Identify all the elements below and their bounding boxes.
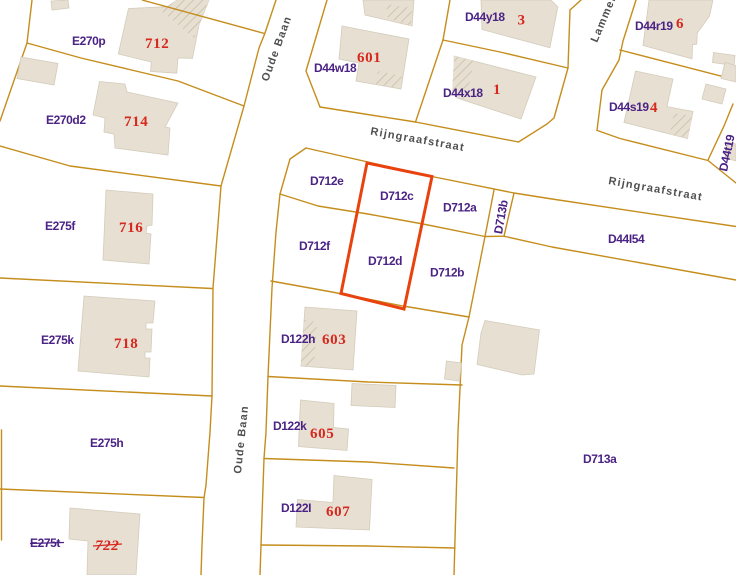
svg-text:D712a: D712a <box>443 201 477 215</box>
svg-text:D712c: D712c <box>380 189 414 203</box>
svg-text:605: 605 <box>310 426 334 442</box>
svg-text:D44r19: D44r19 <box>635 19 673 33</box>
svg-text:D44y18: D44y18 <box>465 10 505 24</box>
svg-text:D44w18: D44w18 <box>314 61 357 75</box>
svg-text:D712e: D712e <box>310 174 344 188</box>
svg-text:D122k: D122k <box>273 419 307 433</box>
svg-text:E275k: E275k <box>41 333 74 347</box>
svg-text:D712d: D712d <box>368 254 402 268</box>
svg-text:722: 722 <box>95 538 119 554</box>
svg-text:6: 6 <box>676 16 684 32</box>
svg-text:714: 714 <box>124 114 148 130</box>
svg-text:4: 4 <box>650 100 658 116</box>
svg-text:607: 607 <box>326 504 350 520</box>
svg-text:712: 712 <box>145 36 169 52</box>
svg-text:1: 1 <box>493 82 501 98</box>
svg-text:D712b: D712b <box>430 266 464 280</box>
svg-text:D44s19: D44s19 <box>609 100 649 114</box>
svg-text:E270p: E270p <box>72 34 105 48</box>
svg-text:D122h: D122h <box>281 332 315 346</box>
svg-text:D44x18: D44x18 <box>443 86 483 100</box>
svg-text:E275f: E275f <box>45 219 76 233</box>
svg-text:E275h: E275h <box>90 436 123 450</box>
svg-text:D712f: D712f <box>299 239 331 253</box>
svg-text:D44I54: D44I54 <box>608 232 645 246</box>
svg-text:601: 601 <box>357 50 381 66</box>
svg-text:D122I: D122I <box>281 501 311 515</box>
svg-text:718: 718 <box>114 336 138 352</box>
svg-text:E270d2: E270d2 <box>46 113 86 127</box>
svg-text:D713a: D713a <box>583 452 617 466</box>
svg-text:716: 716 <box>119 220 143 236</box>
svg-text:603: 603 <box>322 332 346 348</box>
svg-text:3: 3 <box>518 13 526 29</box>
